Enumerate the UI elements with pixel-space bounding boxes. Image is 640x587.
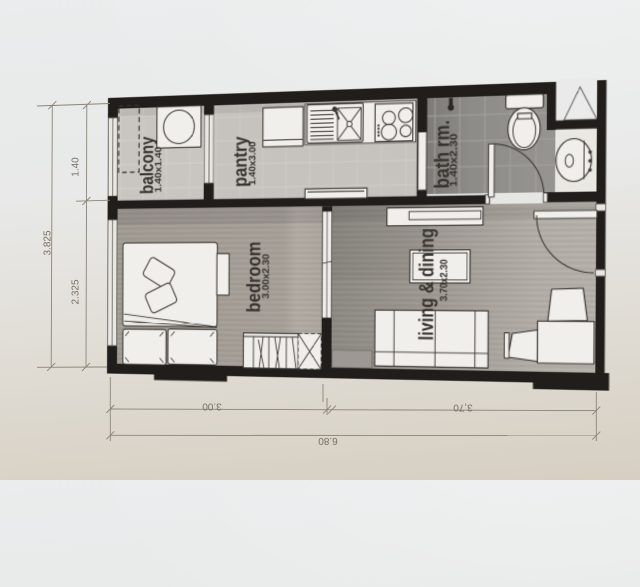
svg-text:2.325: 2.325	[71, 279, 82, 304]
svg-text:3,70: 3,70	[453, 402, 473, 413]
svg-text:1.40: 1.40	[71, 157, 82, 177]
svg-text:3.00: 3.00	[202, 401, 222, 412]
svg-text:6.80: 6.80	[318, 435, 338, 446]
svg-text:3.825: 3.825	[43, 230, 54, 255]
